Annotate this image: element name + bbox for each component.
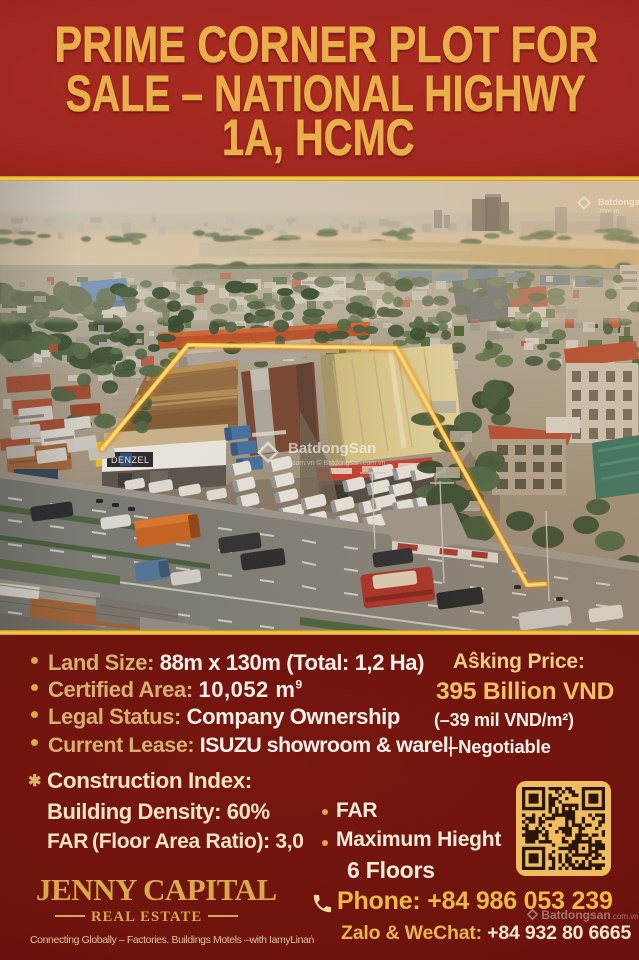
svg-text:Batdongsan: Batdongsan [598,197,639,207]
svg-text:.com.vn © Batdongsan.com.vn: .com.vn © Batdongsan.com.vn [290,459,386,467]
svg-text:BatdongSan: BatdongSan [288,440,376,457]
svg-text:.com.vn: .com.vn [598,209,619,215]
